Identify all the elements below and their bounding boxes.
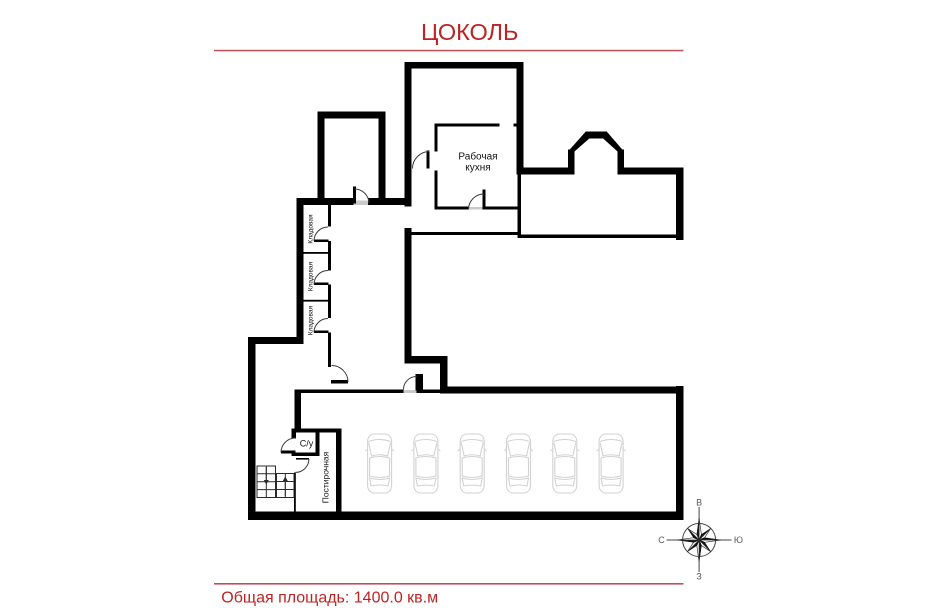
svg-text:Кладовая: Кладовая	[308, 305, 315, 335]
svg-text:Кладовая: Кладовая	[308, 261, 315, 291]
svg-text:Кладовая: Кладовая	[308, 214, 315, 244]
svg-text:кухня: кухня	[465, 163, 490, 174]
svg-text:Общая площадь: 1400.0 кв.м: Общая площадь: 1400.0 кв.м	[221, 590, 438, 607]
svg-text:З: З	[696, 571, 701, 581]
svg-text:С/у: С/у	[300, 439, 314, 449]
svg-text:Рабочая: Рабочая	[458, 151, 497, 163]
svg-text:Постирочная: Постирочная	[321, 451, 331, 503]
svg-text:Ю: Ю	[734, 535, 743, 545]
svg-text:С: С	[658, 535, 665, 545]
svg-text:ЦОКОЛЬ: ЦОКОЛЬ	[421, 19, 518, 45]
svg-text:В: В	[696, 498, 702, 508]
